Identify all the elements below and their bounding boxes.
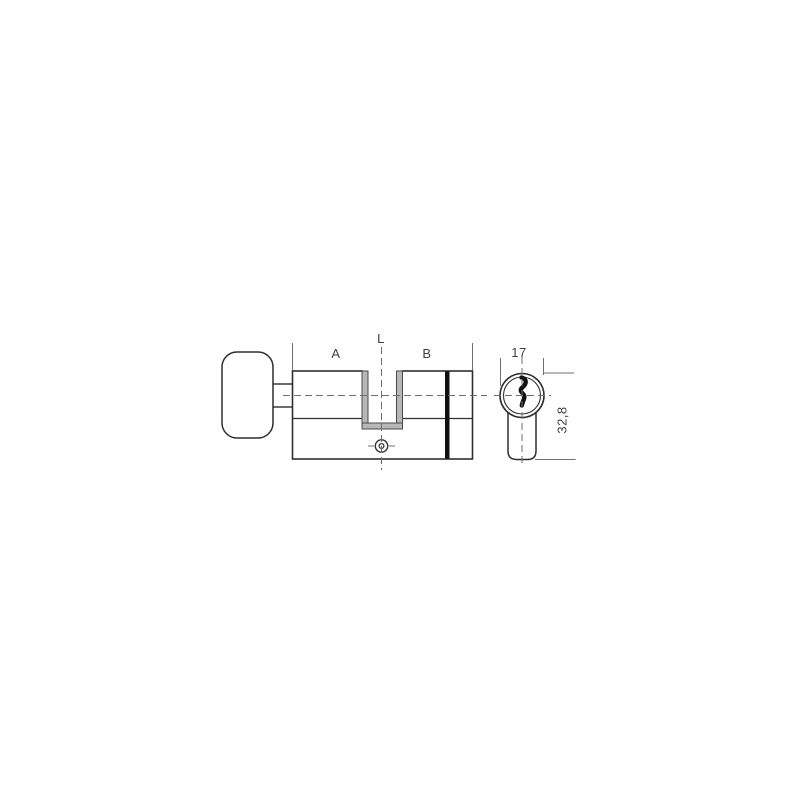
cam-slot-left-wall — [362, 371, 368, 429]
cam-slot-right-wall — [397, 371, 403, 429]
dimension-label-b: B — [422, 346, 431, 361]
thumbturn-knob — [222, 352, 273, 438]
cylinder-lock-drawing: A L B 17 32,8 — [0, 0, 800, 800]
front-view — [494, 357, 551, 467]
dimension-label-l: L — [377, 331, 385, 346]
dimension-label-diameter: 17 — [511, 345, 526, 360]
thumbturn-stem — [271, 384, 294, 407]
marking-ring — [445, 372, 450, 459]
side-view-dimensions: A L B — [293, 331, 473, 370]
technical-drawing-page: A L B 17 32,8 — [0, 0, 800, 800]
dimension-label-a: A — [331, 346, 340, 361]
cam-slot-bottom — [362, 423, 403, 429]
dimension-label-height: 32,8 — [555, 406, 570, 433]
side-view — [222, 347, 487, 470]
